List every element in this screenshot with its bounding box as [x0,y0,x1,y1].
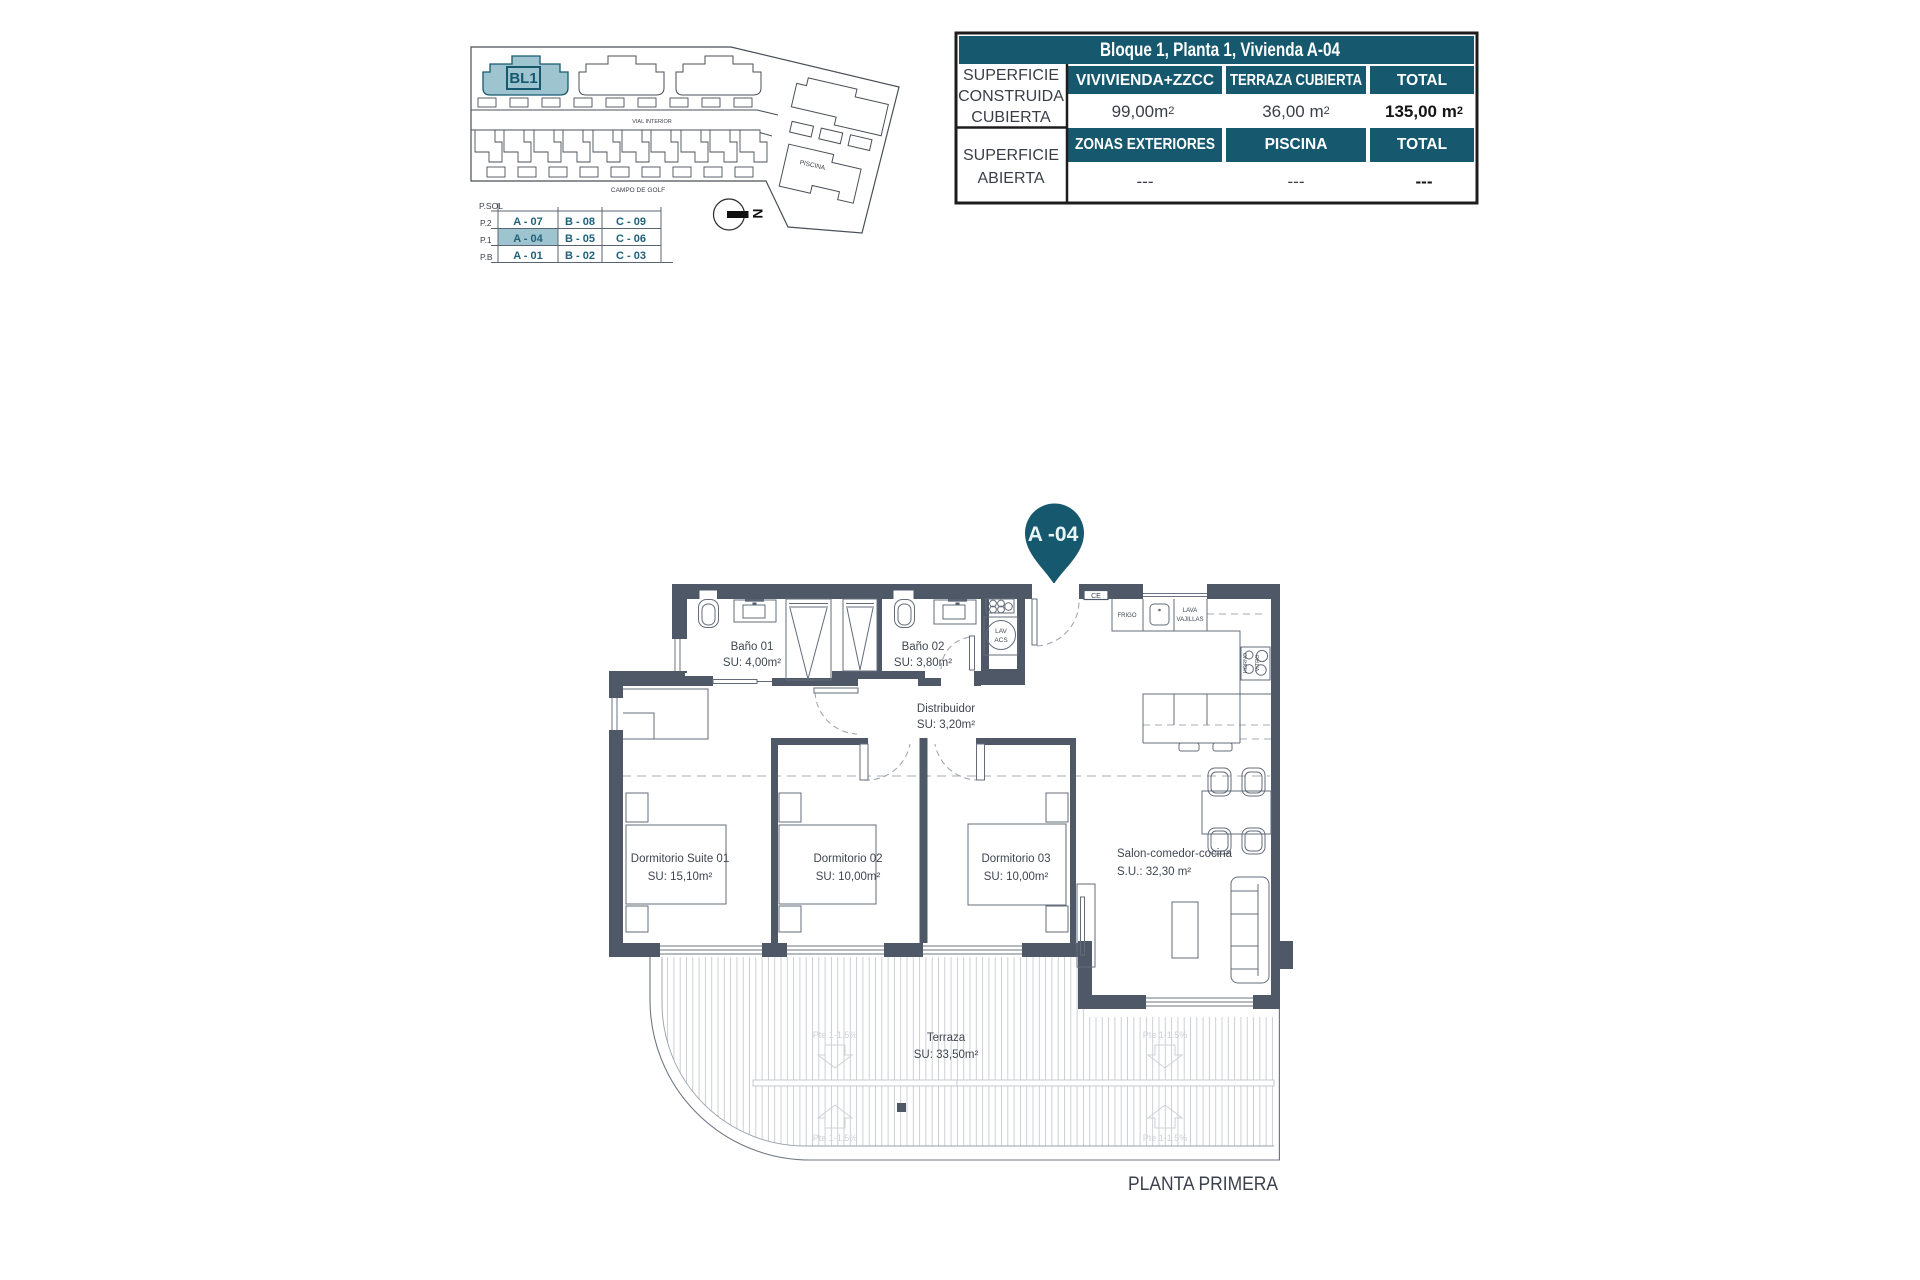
svg-text:TOTAL: TOTAL [1397,136,1447,153]
svg-text:SU: 10,00m²: SU: 10,00m² [984,871,1049,883]
svg-text:PISCINA: PISCINA [1265,136,1328,153]
svg-text:VIVIVIENDA+ZZCC: VIVIVIENDA+ZZCC [1076,72,1214,89]
svg-text:B - 02: B - 02 [565,250,595,262]
svg-text:99,00m2: 99,00m2 [1112,102,1175,121]
svg-text:CONSTRUIDA: CONSTRUIDA [958,88,1064,105]
svg-text:---: --- [1288,172,1305,191]
svg-text:S.U.: 32,30 m²: S.U.: 32,30 m² [1117,866,1191,878]
svg-text:LAV: LAV [995,628,1007,635]
svg-text:Dormitorio Suite 01: Dormitorio Suite 01 [631,853,729,865]
svg-text:C - 03: C - 03 [616,250,646,262]
svg-text:Distribuidor: Distribuidor [917,703,975,715]
svg-text:Dormitorio 03: Dormitorio 03 [981,853,1050,865]
svg-text:SU: 10,00m²: SU: 10,00m² [816,871,881,883]
svg-text:A - 01: A - 01 [513,250,543,262]
svg-text:SU: 15,10m²: SU: 15,10m² [648,871,713,883]
svg-text:SUPERFICIE: SUPERFICIE [963,67,1059,84]
svg-text:Bloque 1, Planta 1, Vivienda A: Bloque 1, Planta 1, Vivienda A-04 [1100,40,1340,61]
svg-text:Pte 1-1.5%: Pte 1-1.5% [813,1133,858,1143]
svg-text:SU: 3,20m²: SU: 3,20m² [917,719,975,731]
svg-text:SU: 3,80m²: SU: 3,80m² [894,657,952,669]
svg-text:135,00 m2: 135,00 m2 [1385,102,1463,121]
svg-text:ABIERTA: ABIERTA [978,170,1045,187]
svg-text:---: --- [1137,172,1154,191]
svg-text:B - 05: B - 05 [565,233,595,245]
svg-text:C - 09: C - 09 [616,216,646,228]
svg-text:VIAL INTERIOR: VIAL INTERIOR [632,119,672,125]
svg-text:ACS: ACS [994,637,1008,644]
svg-text:36,00 m2: 36,00 m2 [1262,102,1330,121]
svg-text:Dormitorio 02: Dormitorio 02 [813,853,882,865]
svg-text:A - 07: A - 07 [513,216,543,228]
svg-text:TOTAL: TOTAL [1397,72,1447,89]
svg-text:P.SOL: P.SOL [479,201,503,211]
svg-text:CAMPO DE GOLF: CAMPO DE GOLF [611,187,665,194]
svg-text:Pte 1-1.5%: Pte 1-1.5% [1143,1133,1188,1143]
svg-text:Baño 02: Baño 02 [902,641,945,653]
svg-text:N: N [750,208,766,218]
svg-text:A - 04: A - 04 [513,233,543,245]
svg-text:ZONAS EXTERIORES: ZONAS EXTERIORES [1075,136,1215,153]
svg-text:P.1: P.1 [480,235,492,245]
svg-text:Salon-comedor-cocina: Salon-comedor-cocina [1117,848,1233,860]
svg-text:VAJILLAS: VAJILLAS [1177,617,1204,623]
svg-text:PLANTA PRIMERA: PLANTA PRIMERA [1128,1174,1278,1195]
svg-text:C - 06: C - 06 [616,233,646,245]
svg-text:BL1: BL1 [509,70,537,87]
svg-text:Terraza: Terraza [927,1032,966,1044]
svg-text:TERRAZA CUBIERTA: TERRAZA CUBIERTA [1230,72,1362,89]
svg-text:Baño 01: Baño 01 [731,641,774,653]
svg-text:Pte 1-1.5%: Pte 1-1.5% [813,1030,858,1040]
svg-text:LAVA: LAVA [1183,608,1197,614]
svg-text:---: --- [1416,172,1433,191]
svg-text:SUPERFICIE: SUPERFICIE [963,147,1059,164]
svg-text:FRIGO: FRIGO [1118,613,1137,619]
svg-text:P.2: P.2 [480,218,492,228]
svg-text:CE: CE [1091,593,1101,600]
svg-text:SU: 33,50m²: SU: 33,50m² [914,1049,979,1061]
svg-text:A -04: A -04 [1028,523,1079,546]
svg-text:B - 08: B - 08 [565,216,595,228]
svg-text:HORNO: HORNO [1243,652,1249,673]
svg-text:CUBIERTA: CUBIERTA [971,109,1051,126]
svg-text:VITRO: VITRO [1255,654,1261,672]
svg-text:P.B: P.B [480,252,493,262]
svg-text:Pte 1-1.5%: Pte 1-1.5% [1143,1030,1188,1040]
svg-text:SU: 4,00m²: SU: 4,00m² [723,657,781,669]
